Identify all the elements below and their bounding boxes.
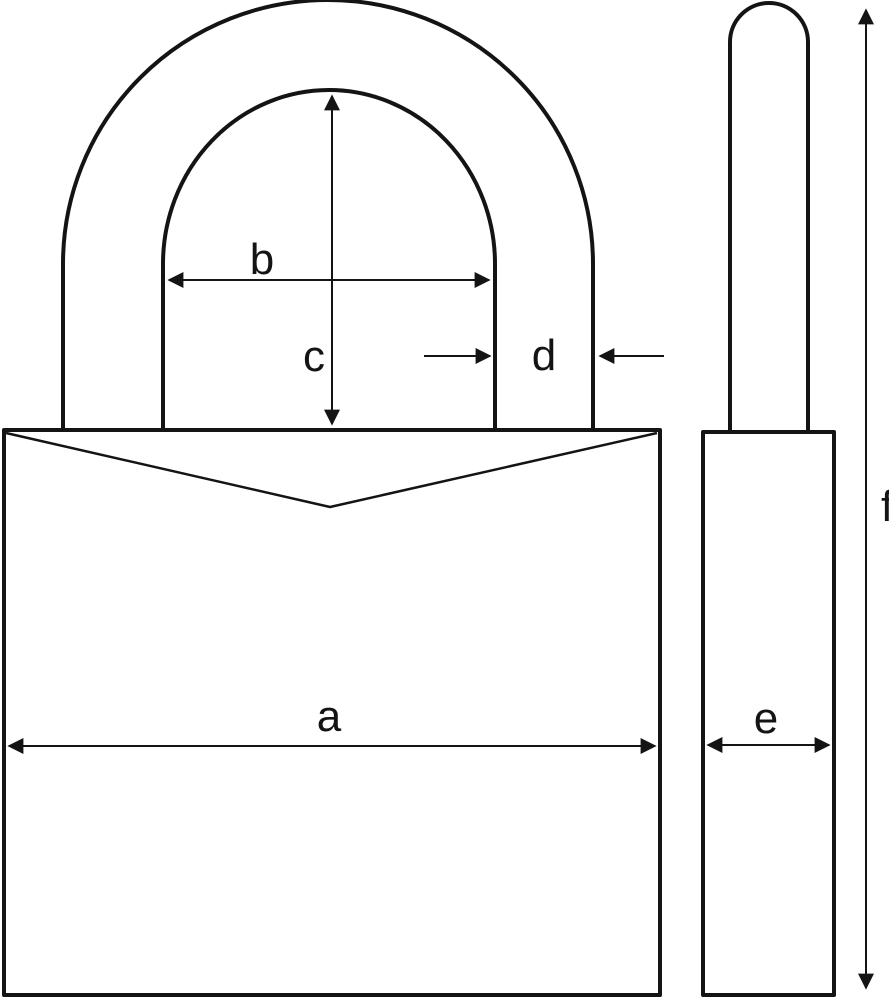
dimension-label-f: f [881,482,889,531]
shackle-inner-outline [163,90,495,431]
dimension-label-b: b [250,235,274,284]
dimension-label-d: d [532,331,556,380]
shackle-outer-outline [63,0,593,431]
dimension-annotations: b c d a e f [9,10,889,988]
padlock-dimension-diagram: b c d a e f [0,0,889,1000]
diagram-svg: b c d a e f [0,0,889,1000]
dimension-label-c: c [303,332,325,381]
dimension-label-e: e [754,694,778,743]
dimension-label-a: a [317,692,342,741]
padlock-side-view [703,3,834,995]
shackle-side-outline [730,3,808,432]
body-top-v-notch [6,433,657,507]
